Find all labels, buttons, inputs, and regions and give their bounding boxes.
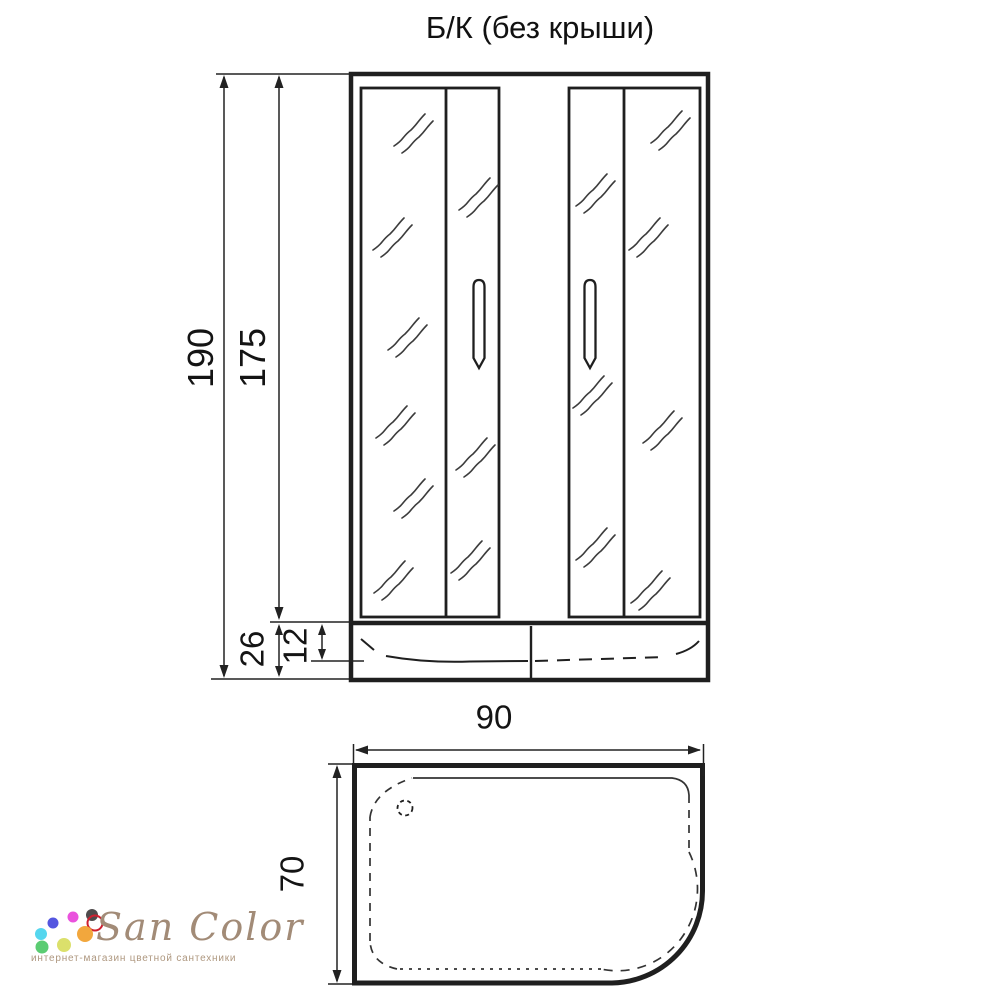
tray-inner-rim (370, 778, 697, 971)
tray-outline (355, 766, 703, 984)
cabin-frame (351, 74, 708, 680)
door-handle (474, 280, 485, 368)
logo-dot (36, 941, 49, 954)
brand-tagline: интернет-магазин цветной сантехники (31, 953, 236, 964)
dimension-label-depth: 70 (276, 856, 309, 893)
logo-dot (48, 918, 59, 929)
logo-dot (35, 928, 47, 940)
door-handle (585, 280, 596, 368)
dimension-label-total-height: 190 (183, 328, 219, 388)
dimension-label-tray-height: 26 (236, 631, 269, 668)
front-view-drawing (211, 74, 710, 680)
brand-logo-text: San Color (96, 905, 304, 949)
product-dimension-diagram: Б/К (без крыши) 190 175 26 12 90 70 San … (0, 0, 1000, 1000)
diagram-title: Б/К (без крыши) (340, 10, 740, 46)
technical-drawing (0, 0, 1000, 1000)
dimension-label-width: 90 (476, 701, 513, 734)
dimension-label-door-height: 175 (235, 328, 271, 388)
drain-icon (398, 801, 413, 816)
top-view-drawing (328, 744, 704, 984)
logo-dot (57, 938, 71, 952)
logo-dot (77, 926, 93, 942)
dimension-label-rim-height: 12 (279, 628, 312, 665)
tray-front (361, 626, 699, 678)
top-dimension-lines (328, 744, 704, 984)
logo-dot (68, 912, 79, 923)
top-dimension-arrows (333, 746, 702, 984)
glass-reflection-marks (373, 111, 690, 610)
